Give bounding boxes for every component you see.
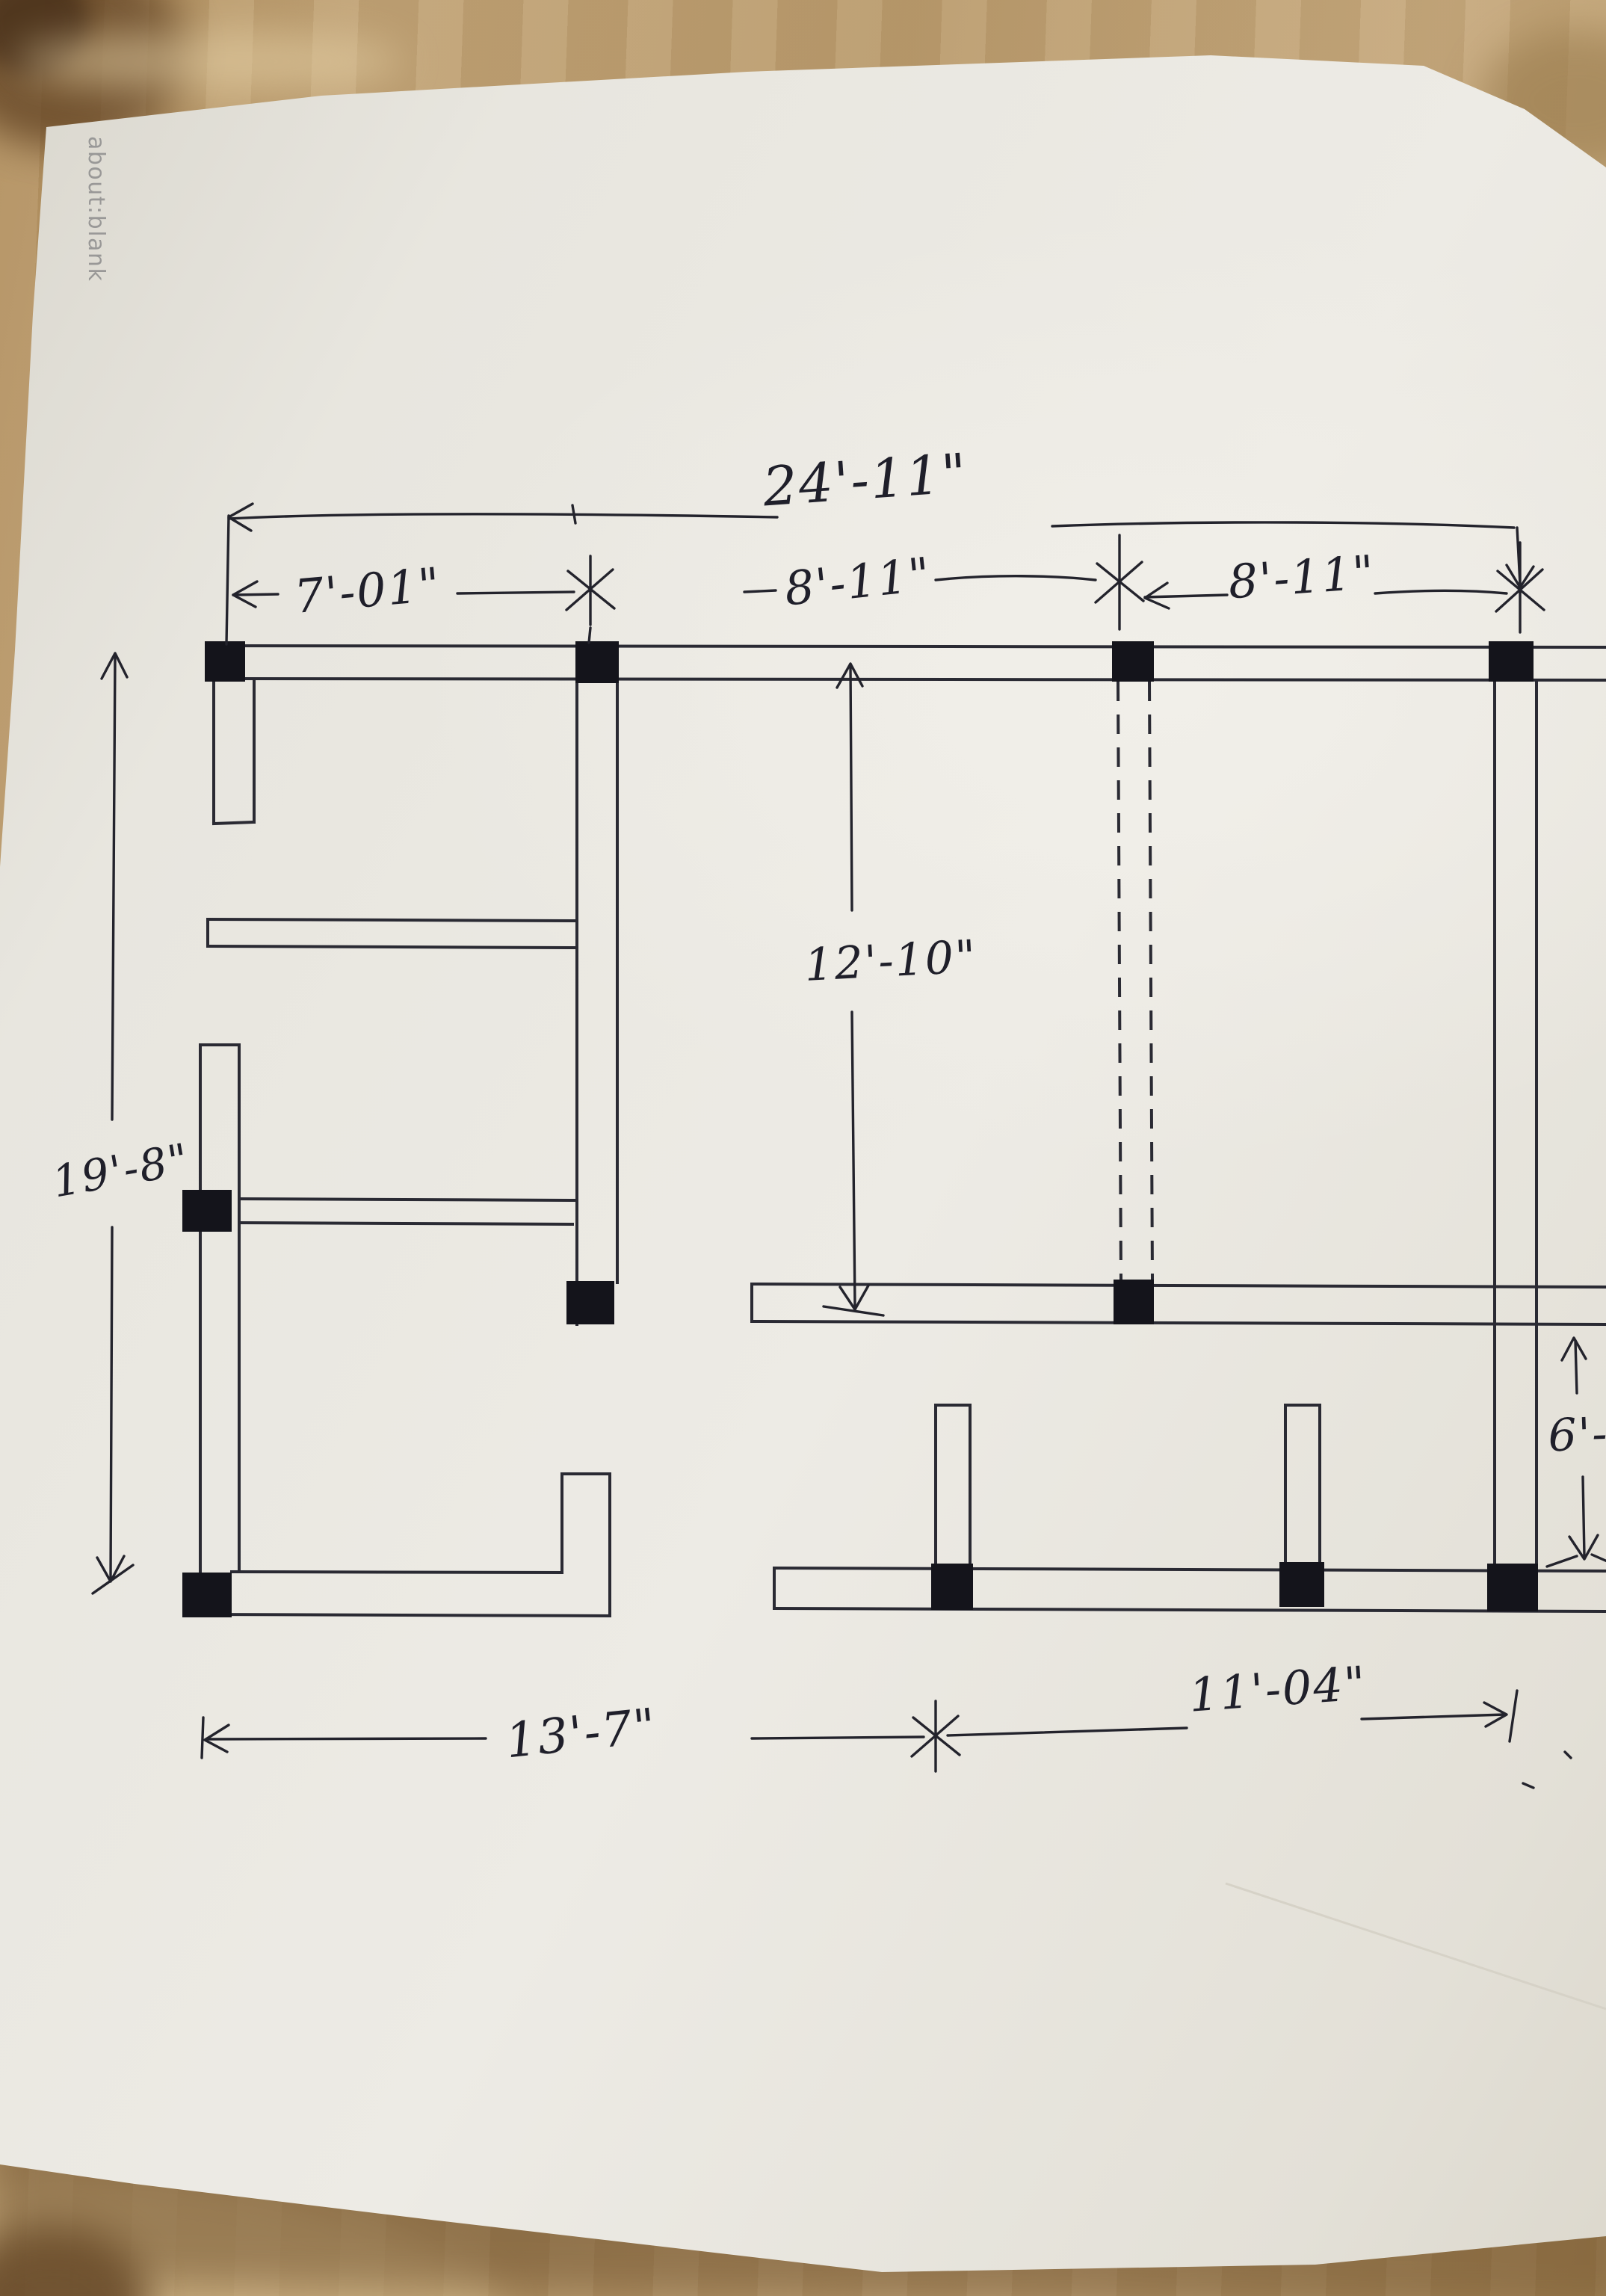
left-upper-wall xyxy=(214,679,254,824)
label-right-lower-depth: 6'- xyxy=(1547,1408,1606,1463)
label-middle-room-depth: 12'-10" xyxy=(803,931,978,992)
columns xyxy=(182,641,1538,1617)
paper-crease xyxy=(1226,1883,1606,2009)
stub-wall-1 xyxy=(936,1405,970,1568)
middle-horizontal-wall xyxy=(752,1284,1606,1324)
dashed-wall xyxy=(1118,682,1152,1280)
floorplan-drawing xyxy=(0,0,1606,2296)
stub-wall-2 xyxy=(1285,1405,1320,1567)
long-interior-vertical-wall xyxy=(577,682,617,1324)
photo-of-floor-plan-sketch: about:blank xyxy=(0,0,1606,2296)
label-top-segment-3: 8'-11" xyxy=(1226,545,1377,610)
exterior-top-wall xyxy=(215,646,1606,680)
l-return-wall xyxy=(562,1474,610,1616)
interior-wall-a xyxy=(208,919,577,948)
bottom-right-wall xyxy=(774,1568,1606,1611)
bottom-left-wall xyxy=(200,1572,610,1616)
dim-left-total-height xyxy=(93,653,133,1593)
right-interior-vertical-wall xyxy=(1495,682,1536,1568)
left-lower-wall xyxy=(200,1045,239,1614)
interior-wall-b xyxy=(239,1199,577,1224)
